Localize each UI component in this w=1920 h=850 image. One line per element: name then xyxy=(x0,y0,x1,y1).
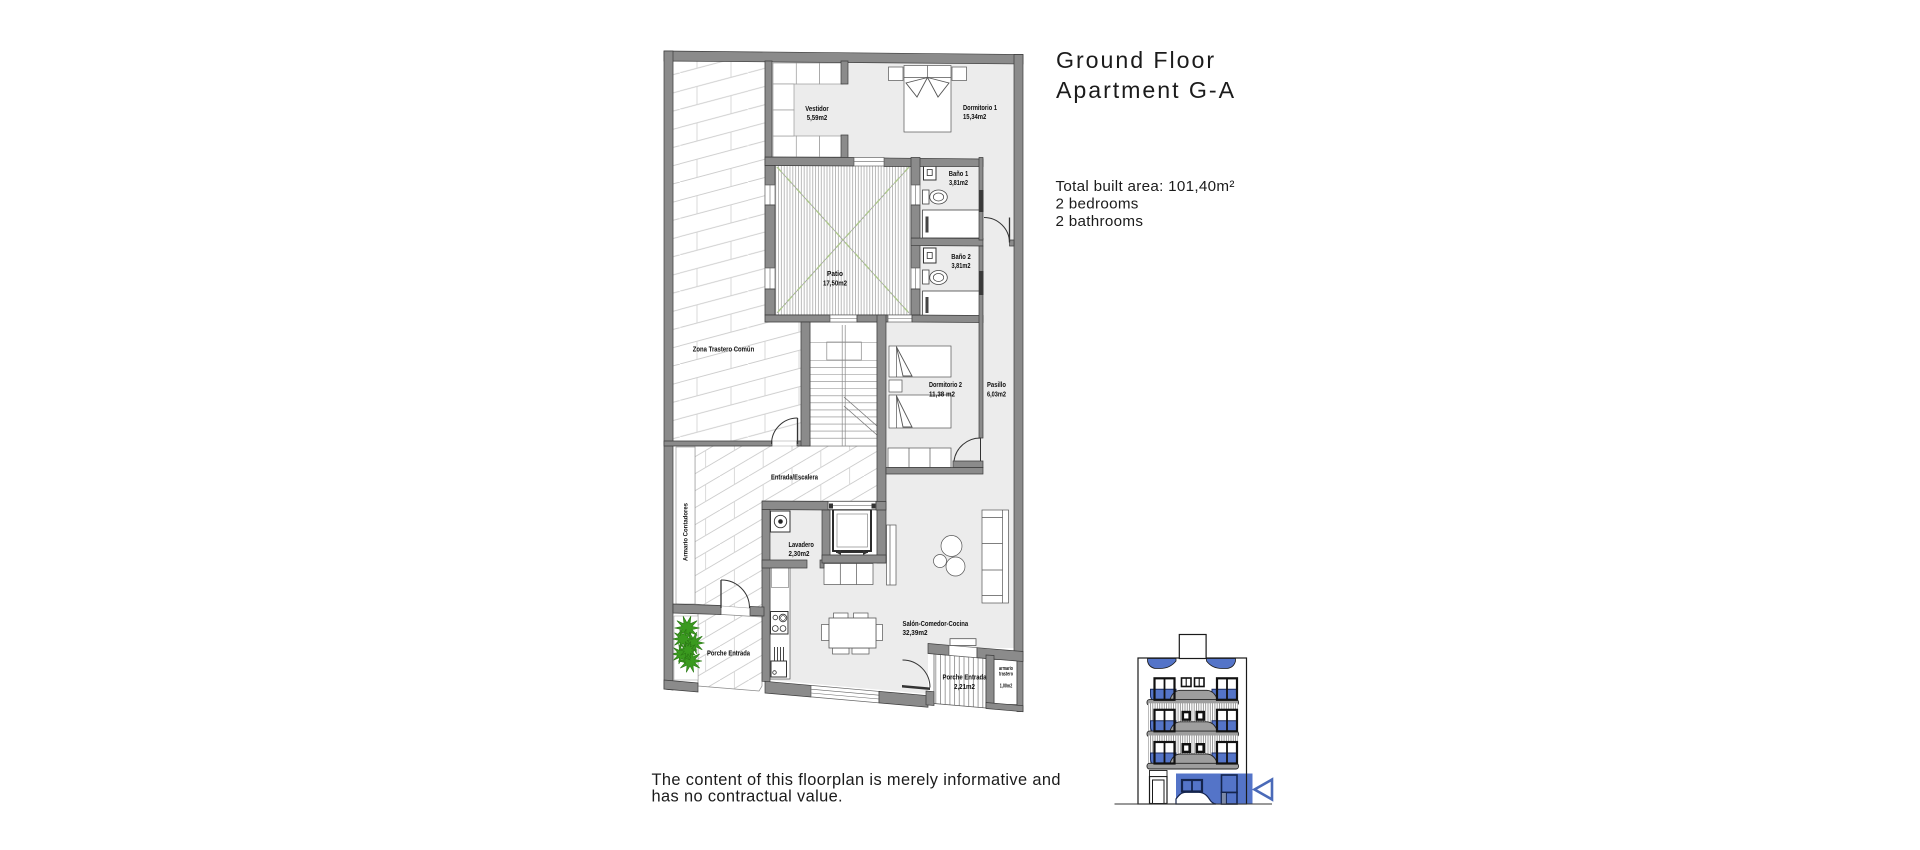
svg-text:Baño 1: Baño 1 xyxy=(949,169,969,178)
svg-text:Salón-Comedor-Cocina: Salón-Comedor-Cocina xyxy=(903,619,970,628)
svg-text:2,30m2: 2,30m2 xyxy=(789,549,810,558)
svg-text:15,34m2: 15,34m2 xyxy=(963,112,986,121)
svg-text:1,00m2: 1,00m2 xyxy=(1000,684,1013,690)
svg-text:Entrada/Escalera: Entrada/Escalera xyxy=(771,473,819,482)
svg-text:Armario Contadores: Armario Contadores xyxy=(683,503,690,561)
svg-text:trastero: trastero xyxy=(999,672,1013,678)
svg-text:3,81m2: 3,81m2 xyxy=(952,261,971,270)
svg-text:Ground Floor: Ground Floor xyxy=(1056,47,1216,73)
svg-text:Porche Entrada: Porche Entrada xyxy=(707,649,751,658)
svg-text:3,81m2: 3,81m2 xyxy=(949,178,968,187)
svg-text:2 bedrooms: 2 bedrooms xyxy=(1056,195,1139,212)
svg-text:The content of this floorplan: The content of this floorplan is merely … xyxy=(652,771,1061,789)
svg-text:32,39m2: 32,39m2 xyxy=(903,628,928,637)
svg-text:Porche Entrada: Porche Entrada xyxy=(943,673,988,682)
svg-text:has no contractual value.: has no contractual value. xyxy=(652,788,843,806)
svg-text:11,38 m2: 11,38 m2 xyxy=(929,390,955,399)
svg-text:Dormitorio 1: Dormitorio 1 xyxy=(963,103,997,112)
svg-text:2,21m2: 2,21m2 xyxy=(954,682,975,691)
svg-text:Zona Trastero Común: Zona Trastero Común xyxy=(693,345,754,354)
svg-text:Apartment G-A: Apartment G-A xyxy=(1056,77,1236,103)
svg-text:Total built area: 101,40m²: Total built area: 101,40m² xyxy=(1056,178,1235,195)
svg-text:2 bathrooms: 2 bathrooms xyxy=(1056,213,1144,230)
svg-text:5,59m2: 5,59m2 xyxy=(807,113,828,122)
svg-text:Patio: Patio xyxy=(827,269,844,278)
svg-text:Dormitorio 2: Dormitorio 2 xyxy=(929,380,962,389)
svg-text:17,50m2: 17,50m2 xyxy=(823,279,847,288)
svg-text:Lavadero: Lavadero xyxy=(789,540,815,549)
svg-text:6,03m2: 6,03m2 xyxy=(987,390,1006,399)
svg-text:Baño 2: Baño 2 xyxy=(951,252,971,261)
svg-text:Pasillo: Pasillo xyxy=(987,380,1006,389)
svg-text:Vestidor: Vestidor xyxy=(805,104,829,113)
